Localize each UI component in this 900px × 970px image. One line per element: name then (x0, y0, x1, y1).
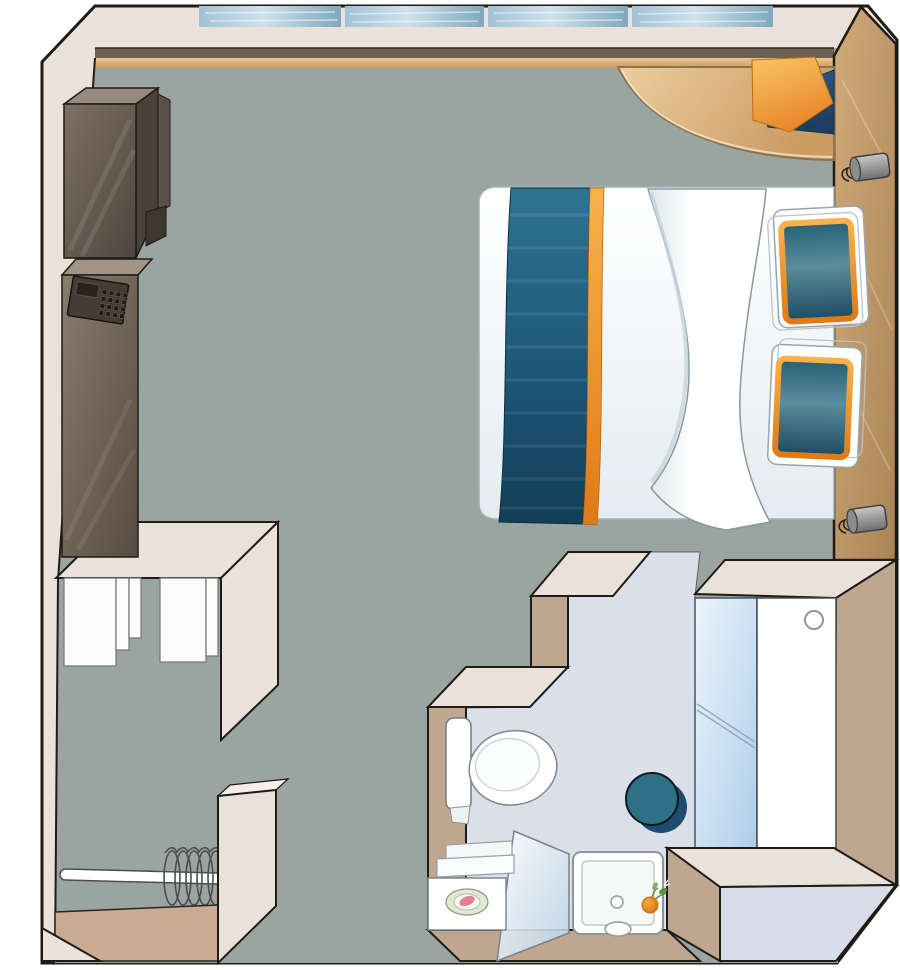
shower-tray-inner (582, 861, 654, 925)
pillow-insert (781, 220, 856, 322)
pillow (767, 338, 866, 468)
window-ledge-shadow (95, 48, 834, 58)
safe-keypad (67, 276, 129, 324)
bathroom-wall-right (834, 560, 896, 885)
window-pane (199, 6, 341, 27)
floor-plan-stage (0, 0, 900, 970)
plant-bloom (642, 897, 658, 913)
keypad-screen (76, 282, 100, 298)
cabinet-back-panel (158, 94, 170, 212)
safe-unit (62, 259, 152, 557)
shower-tray-lip (605, 922, 631, 936)
bathroom-door (757, 598, 836, 848)
bathroom-wall-upper-side (531, 596, 568, 668)
vanity-shelf (437, 855, 514, 877)
door-knob (805, 611, 823, 629)
bed-runner (499, 188, 590, 524)
window-pane (488, 6, 628, 27)
window-pane (345, 6, 484, 27)
linen-stack (129, 578, 141, 638)
stool (626, 773, 678, 825)
toilet-tank (446, 718, 471, 810)
pillow (767, 206, 869, 331)
cabin-floor-plan (0, 0, 900, 970)
linen-stack (160, 578, 206, 662)
safe-top-face (62, 259, 152, 275)
shower-drain (611, 896, 623, 908)
tv-cabinet (64, 88, 170, 258)
linen-stack (116, 578, 129, 650)
toilet-flush (450, 806, 470, 824)
pillow-insert (775, 358, 851, 457)
linen-stack (64, 578, 116, 666)
linen-stack (206, 578, 218, 656)
double-bed (479, 187, 869, 530)
window-pane (632, 6, 773, 27)
